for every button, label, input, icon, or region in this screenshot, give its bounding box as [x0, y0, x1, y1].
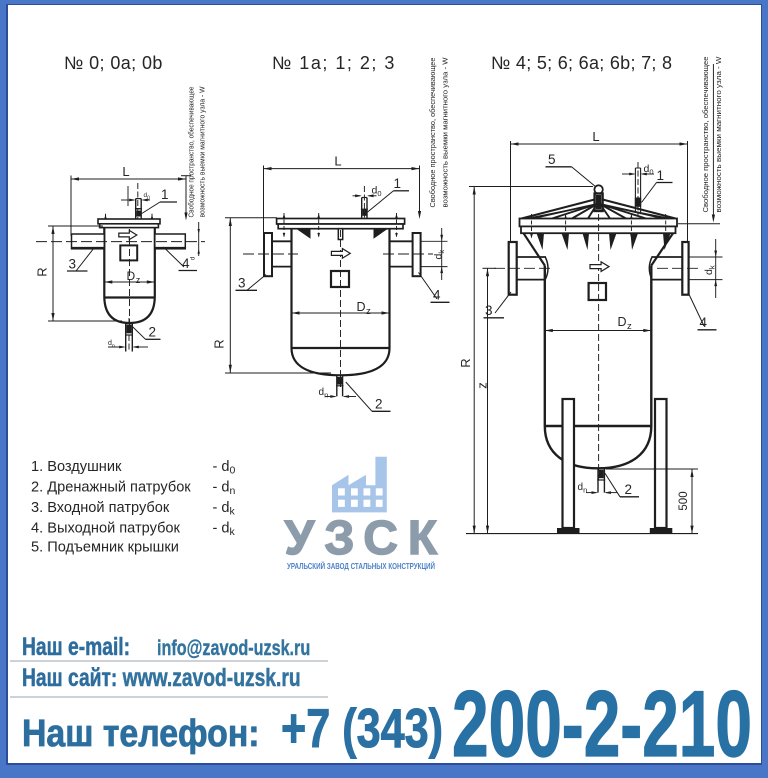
svg-text:2: 2: [149, 325, 157, 340]
svg-text:R: R: [35, 267, 50, 276]
svg-text:- dk: - dk: [213, 521, 236, 539]
svg-text:d0: d0: [644, 163, 654, 177]
svg-text:УЗСК: УЗСК: [285, 512, 448, 565]
svg-text:z: z: [627, 321, 632, 332]
svg-text:4: 4: [700, 315, 708, 330]
svg-text:1. Воздушник: 1. Воздушник: [31, 459, 122, 475]
svg-text:5. Подъемник крышки: 5. Подъемник крышки: [31, 540, 179, 556]
svg-text:R: R: [212, 339, 227, 348]
svg-text:№ 0; 0а; 0b: № 0; 0а; 0b: [64, 53, 163, 73]
svg-text:2: 2: [375, 397, 383, 412]
svg-text:dn: dn: [108, 340, 115, 350]
svg-text:dk: dk: [433, 250, 447, 260]
svg-text:500: 500: [678, 491, 690, 510]
svg-text:3: 3: [485, 303, 493, 318]
svg-text:D: D: [127, 269, 136, 283]
svg-text:1: 1: [161, 187, 169, 202]
svg-text:dn: dn: [319, 387, 329, 400]
svg-text:R: R: [458, 358, 473, 367]
svg-text:- d0: - d0: [213, 459, 236, 477]
svg-text:L: L: [592, 129, 599, 144]
svg-text:возможность выемки магнитного: возможность выемки магнитного узла - W: [714, 56, 723, 213]
svg-text:№ 1а; 1; 2; 3: № 1а; 1; 2; 3: [272, 53, 396, 73]
svg-text:1: 1: [394, 176, 402, 191]
svg-text:возможность выемки магнитного: возможность выемки магнитного узла - W: [440, 57, 449, 208]
svg-text:Свободное пространство, обеспе: Свободное пространство, обеспечивающее: [188, 86, 196, 217]
svg-text:возможность выемки магнитного: возможность выемки магнитного узла - W: [199, 86, 207, 217]
svg-text:2: 2: [625, 482, 633, 497]
svg-text:- dn: - dn: [213, 480, 236, 498]
svg-text:1: 1: [657, 168, 665, 183]
svg-text:dn: dn: [578, 482, 588, 495]
svg-text:d0: d0: [372, 185, 382, 199]
svg-text:z: z: [366, 306, 371, 317]
svg-text:4. Выходной патрубок: 4. Выходной патрубок: [31, 521, 181, 537]
svg-text:L: L: [334, 154, 341, 169]
svg-text:z: z: [136, 275, 141, 285]
svg-text:№ 4; 5; 6; 6а; 6b; 7; 8: № 4; 5; 6; 6а; 6b; 7; 8: [491, 53, 672, 73]
svg-text:Свободное пространство, обеспе: Свободное пространство, обеспечивающее: [428, 58, 437, 208]
svg-text:L: L: [122, 164, 129, 179]
svg-text:d: d: [190, 256, 197, 260]
svg-text:3: 3: [69, 257, 77, 272]
svg-text:5: 5: [548, 152, 556, 167]
svg-text:3. Входной патрубок: 3. Входной патрубок: [31, 500, 170, 516]
svg-text:dk: dk: [703, 265, 717, 275]
svg-text:Свободное пространство, обеспе: Свободное пространство, обеспечивающее: [701, 57, 710, 213]
svg-text:D: D: [618, 315, 627, 329]
svg-text:z: z: [475, 382, 490, 389]
svg-text:2. Дренажный патрубок: 2. Дренажный патрубок: [31, 480, 191, 496]
svg-text:УРАЛЬСКИЙ ЗАВОД СТАЛЬНЫХ КОНСТ: УРАЛЬСКИЙ ЗАВОД СТАЛЬНЫХ КОНСТРУКЦИЙ: [287, 560, 435, 571]
svg-text:- dk: - dk: [213, 500, 236, 518]
svg-text:D: D: [357, 300, 366, 314]
svg-text:3: 3: [238, 276, 246, 291]
